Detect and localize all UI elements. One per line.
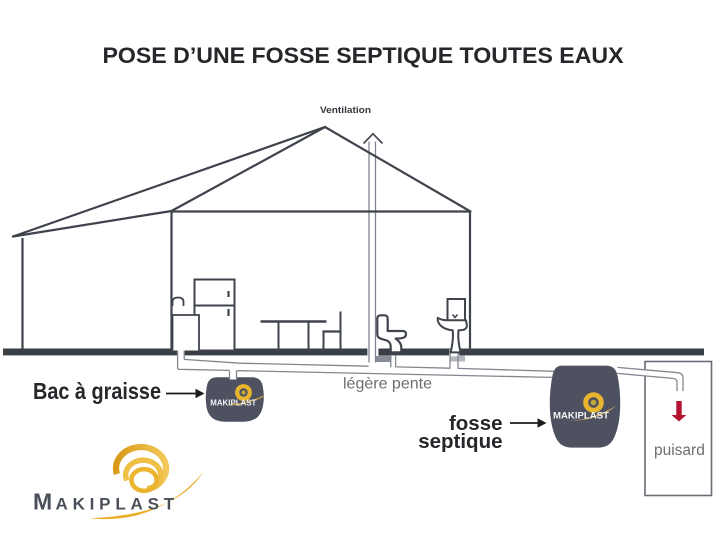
svg-text:M: M [33, 489, 52, 515]
svg-text:POSE D’UNE FOSSE SEPTIQUE TOUT: POSE D’UNE FOSSE SEPTIQUE TOUTES EAUX [103, 43, 624, 68]
svg-text:septique: septique [418, 430, 502, 453]
svg-text:MAKIPLAST: MAKIPLAST [210, 398, 256, 407]
svg-text:Bac à graisse: Bac à graisse [33, 378, 161, 404]
svg-text:AKIPLAST: AKIPLAST [56, 495, 179, 514]
svg-text:MAKIPLAST: MAKIPLAST [553, 411, 609, 422]
svg-text:légère pente: légère pente [343, 376, 432, 393]
svg-text:Ventilation: Ventilation [320, 105, 371, 116]
svg-text:puisard: puisard [654, 442, 705, 459]
